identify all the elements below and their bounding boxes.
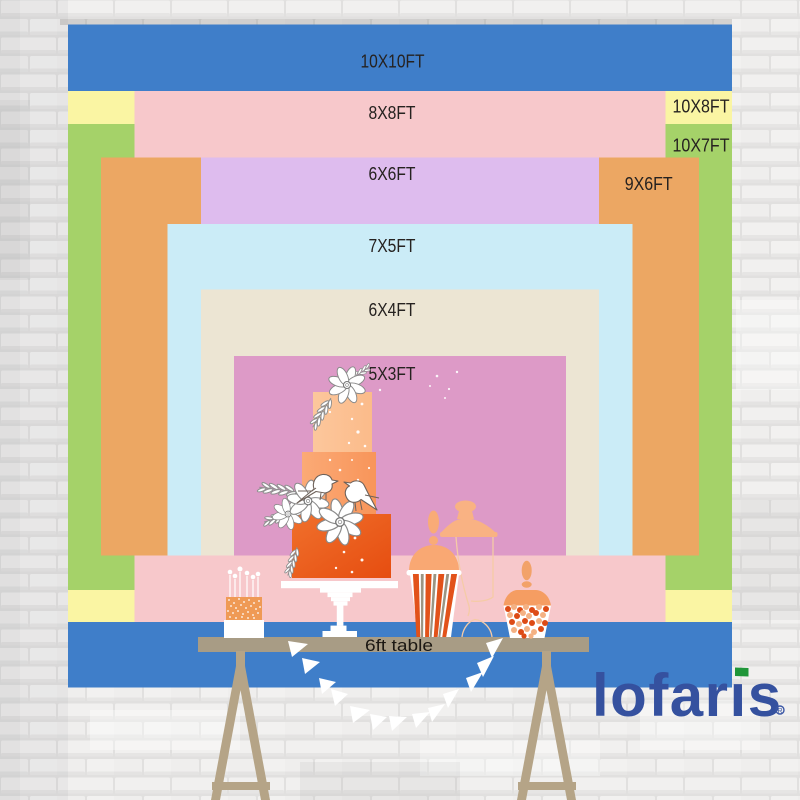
svg-text:lofarıs: lofarıs <box>592 662 783 729</box>
svg-text:10X8FT: 10X8FT <box>673 96 730 117</box>
svg-text:6X4FT: 6X4FT <box>369 299 416 320</box>
svg-text:6ft table: 6ft table <box>365 637 433 655</box>
svg-text:8X8FT: 8X8FT <box>369 102 416 123</box>
svg-text:10X10FT: 10X10FT <box>361 51 425 72</box>
svg-text:R: R <box>777 708 782 715</box>
svg-text:5X3FT: 5X3FT <box>369 363 416 384</box>
svg-text:10X7FT: 10X7FT <box>673 135 730 156</box>
svg-text:9X6FT: 9X6FT <box>625 173 673 194</box>
svg-text:6X6FT: 6X6FT <box>369 163 416 184</box>
svg-text:7X5FT: 7X5FT <box>369 235 416 256</box>
